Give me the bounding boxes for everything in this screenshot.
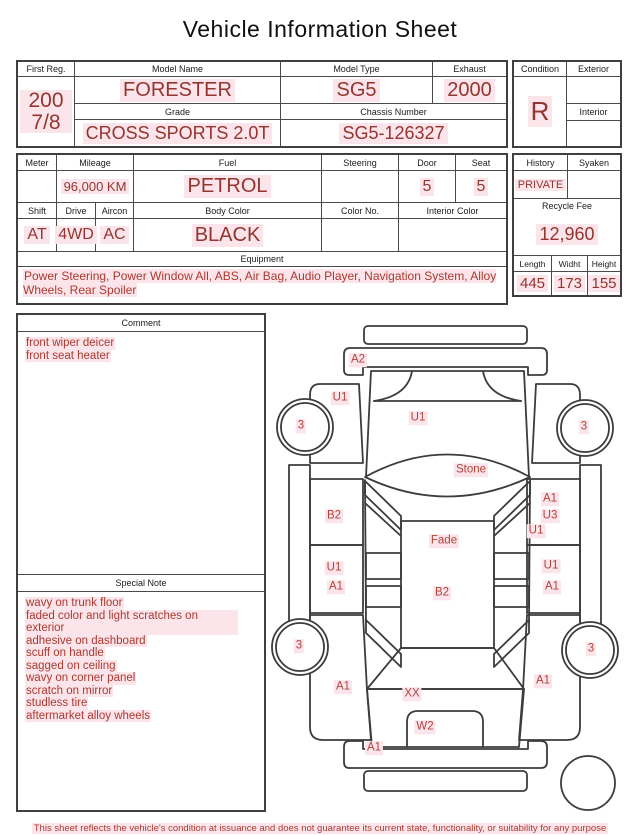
- mileage-value-text: 96,000 KM: [61, 179, 130, 194]
- syaken-value: [568, 171, 620, 198]
- meter-value: [18, 171, 56, 202]
- exhaust-value: 2000: [433, 77, 506, 104]
- right-b-pillar-upper: [494, 553, 529, 579]
- damage-code-label: Stone: [454, 463, 488, 477]
- condition-table: Condition R Exterior Interior: [512, 60, 622, 148]
- grade-label: Grade: [75, 104, 281, 120]
- left-sill-shape: [289, 465, 310, 625]
- damage-code-label: U3: [541, 509, 560, 523]
- body-color-label: Body Color: [134, 203, 321, 219]
- history-value: PRIVATE: [514, 171, 567, 198]
- rear-window-shape: [367, 648, 524, 689]
- special-note-line: aftermarket alloy wheels: [25, 710, 151, 723]
- equipment-text-content: Power Steering, Power Window All, ABS, A…: [23, 269, 496, 297]
- front-bumper-strip-shape: [364, 326, 527, 344]
- special-note-line: sagged on ceiling: [25, 660, 117, 673]
- interior-color-label: Interior Color: [399, 203, 506, 219]
- windshield-shape: [365, 455, 530, 497]
- exterior-value: [567, 77, 620, 104]
- comment-label: Comment: [18, 315, 264, 332]
- syaken-label: Syaken: [568, 155, 620, 171]
- history-table: HistoryPRIVATE Syaken Recycle Fee 12,960…: [512, 153, 622, 297]
- meter-label: Meter: [18, 155, 56, 171]
- damage-code-label: U1: [409, 411, 428, 425]
- damage-code-label: 3: [579, 420, 589, 434]
- spare-wheel: [561, 756, 615, 810]
- fuel-label: Fuel: [134, 155, 321, 171]
- equipment-label: Equipment: [18, 252, 506, 267]
- fuel-value: PETROL: [134, 171, 321, 202]
- equipment-text: Power Steering, Power Window All, ABS, A…: [18, 267, 506, 300]
- body-color-value-text: BLACK: [192, 224, 264, 247]
- color-no-label: Color No.: [322, 203, 398, 219]
- first-reg-label: First Reg.: [18, 62, 75, 77]
- right-sill-shape: [580, 465, 601, 625]
- seat-value: 5: [456, 171, 506, 202]
- grade-value-text: CROSS SPORTS 2.0T: [83, 123, 273, 144]
- right-headlight-arc: [483, 371, 521, 401]
- height-value-text: 155: [588, 275, 619, 292]
- comment-line: front wiper deicer: [25, 337, 115, 350]
- condition-value-text: R: [528, 96, 553, 127]
- model-type-value-text: SG5: [333, 79, 379, 102]
- damage-code-label: Fade: [429, 534, 459, 548]
- model-type-label: Model Type: [281, 62, 433, 77]
- door-label: Door: [399, 155, 455, 171]
- damage-code-label: 3: [294, 639, 304, 653]
- shift-value-text: AT: [24, 226, 49, 244]
- seat-value-text: 5: [474, 178, 489, 196]
- identity-table: First Reg. 2007/8 Model Name Model Type …: [16, 60, 508, 148]
- disclaimer-text: This sheet reflects the vehicle's condit…: [32, 823, 608, 834]
- damage-code-label: A1: [327, 580, 345, 594]
- aircon-label: Aircon: [96, 203, 133, 219]
- door-value: 5: [399, 171, 455, 202]
- comment-line: front seat heater: [25, 350, 111, 363]
- damage-code-label: B2: [433, 586, 451, 600]
- left-c-pillar-shape: [366, 620, 401, 667]
- right-b-pillar-lower: [494, 586, 529, 607]
- mileage-value: 96,000 KM: [57, 171, 133, 202]
- damage-code-label: A1: [334, 680, 352, 694]
- height-label: Height: [588, 256, 620, 272]
- damage-code-label: B2: [325, 509, 343, 523]
- history-row: HistoryPRIVATE Syaken: [514, 155, 620, 199]
- special-note-label: Special Note: [18, 575, 264, 592]
- body-color-value: BLACK: [134, 219, 321, 251]
- shift-value: AT: [18, 219, 56, 251]
- model-name-value: FORESTER: [75, 77, 281, 104]
- damage-code-label: A1: [543, 580, 561, 594]
- damage-code-label: XX: [402, 687, 421, 701]
- fuel-value-text: PETROL: [184, 175, 270, 198]
- damage-code-label: A1: [365, 741, 383, 755]
- seat-label: Seat: [456, 155, 506, 171]
- steering-value: [322, 171, 398, 202]
- width-value-text: 173: [554, 275, 585, 292]
- width-value: 173: [552, 272, 587, 295]
- drive-value: 4WD: [57, 219, 95, 251]
- aircon-value-text: AC: [100, 226, 128, 244]
- special-note-line: faded color and light scratches on exter…: [25, 610, 238, 635]
- exterior-label: Exterior: [567, 62, 620, 77]
- length-value-text: 445: [517, 275, 548, 292]
- comment-note-panel: Comment front wiper deicerfront seat hea…: [16, 313, 266, 812]
- spec-table: Meter Mileage96,000 KM FuelPETROL Steeri…: [16, 153, 508, 305]
- height-value: 155: [588, 272, 620, 295]
- car-damage-diagram: A2U13U13StoneB2A1U3U1FadeU1A1B2U1A133A1A…: [270, 310, 640, 815]
- hood-shape: [366, 371, 529, 477]
- grade-value: CROSS SPORTS 2.0T: [75, 120, 281, 146]
- disclaimer: This sheet reflects the vehicle's condit…: [0, 818, 640, 835]
- left-a-pillar-line: [365, 503, 401, 536]
- left-headlight-arc: [374, 371, 412, 401]
- left-b-pillar-lower: [366, 586, 401, 607]
- recycle-fee-value-text: 12,960: [536, 224, 597, 245]
- chassis-number-value: SG5-126327: [281, 120, 506, 146]
- width-label: Widht: [552, 256, 587, 272]
- damage-code-label: U1: [527, 524, 546, 538]
- damage-code-label: W2: [414, 720, 435, 734]
- model-name-label: Model Name: [75, 62, 281, 77]
- left-rear-door-shape: [310, 545, 363, 613]
- right-rear-door-shape: [527, 545, 580, 613]
- trunk-shape: [367, 689, 524, 747]
- spec-row-1: Meter Mileage96,000 KM FuelPETROL Steeri…: [18, 155, 506, 203]
- exhaust-label: Exhaust: [433, 62, 506, 77]
- rear-bumper-strip-shape: [364, 771, 527, 791]
- right-a-pillar-line: [494, 503, 530, 536]
- steering-label: Steering: [322, 155, 398, 171]
- condition-value: R: [514, 77, 567, 146]
- comment-text: front wiper deicerfront seat heater: [18, 332, 264, 575]
- drive-value-text: 4WD: [55, 226, 97, 244]
- special-note-line: scratch on mirror: [25, 685, 113, 698]
- aircon-value: AC: [96, 219, 133, 251]
- shift-label: Shift: [18, 203, 56, 219]
- page-title: Vehicle Information Sheet: [0, 16, 640, 43]
- chassis-number-label: Chassis Number: [281, 104, 506, 120]
- vehicle-information-sheet: Vehicle Information Sheet First Reg. 200…: [0, 0, 640, 835]
- chassis-number-value-text: SG5-126327: [339, 123, 447, 144]
- color-no-value: [322, 219, 398, 251]
- special-note-line: wavy on corner panel: [25, 672, 136, 685]
- first-reg-value: 2007/8: [18, 77, 75, 146]
- special-note-line: scuff on handle: [25, 647, 105, 660]
- interior-value: [567, 121, 620, 146]
- interior-color-value: [399, 219, 506, 251]
- special-note-line: studless tire: [25, 697, 88, 710]
- spec-row-2: ShiftAT Drive4WD AirconAC Body ColorBLAC…: [18, 203, 506, 252]
- door-value-text: 5: [420, 178, 435, 196]
- special-note-line: adhesive on dashboard: [25, 635, 147, 648]
- special-note-text: wavy on trunk floorfaded color and light…: [18, 592, 264, 810]
- drive-label: Drive: [57, 203, 95, 219]
- length-value: 445: [514, 272, 551, 295]
- damage-code-label: 3: [296, 419, 306, 433]
- model-type-value: SG5: [281, 77, 433, 104]
- history-value-text: PRIVATE: [515, 179, 566, 191]
- damage-code-label: A1: [541, 492, 559, 506]
- first-reg-value-text: 2007/8: [20, 90, 72, 133]
- damage-code-label: U1: [331, 391, 350, 405]
- left-b-pillar-upper: [366, 553, 401, 579]
- damage-code-label: 3: [586, 642, 596, 656]
- damage-code-label: A2: [349, 353, 367, 367]
- special-note-line: wavy on trunk floor: [25, 597, 124, 610]
- mileage-label: Mileage: [57, 155, 133, 171]
- length-label: Length: [514, 256, 551, 272]
- exhaust-value-text: 2000: [444, 79, 495, 102]
- damage-code-label: A1: [534, 674, 552, 688]
- damage-code-label: U1: [542, 559, 561, 573]
- dimensions-row: Length445 Widht173 Height155: [514, 256, 620, 295]
- interior-label: Interior: [567, 104, 620, 121]
- damage-code-label: U1: [325, 561, 344, 575]
- model-name-value-text: FORESTER: [120, 79, 235, 102]
- condition-label: Condition: [514, 62, 567, 77]
- recycle-fee-value: 12,960: [514, 213, 620, 256]
- recycle-fee-label: Recycle Fee: [514, 199, 620, 213]
- history-label: History: [514, 155, 567, 171]
